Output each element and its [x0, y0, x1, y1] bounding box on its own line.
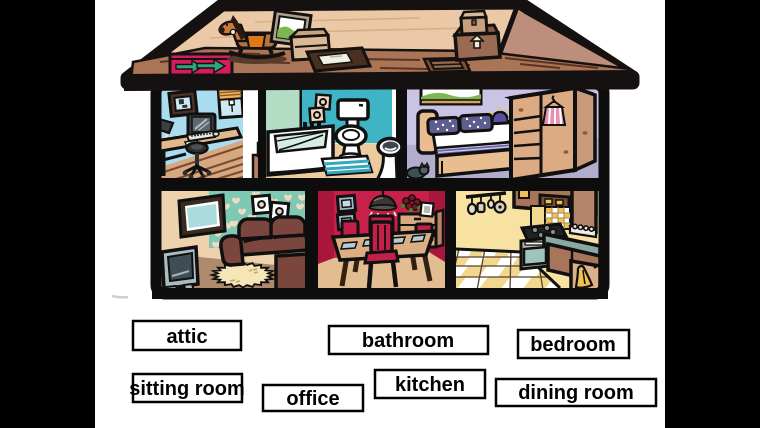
- svg-text:attic: attic: [166, 326, 207, 348]
- svg-text:bathroom: bathroom: [362, 330, 454, 352]
- svg-text:dining room: dining room: [518, 382, 634, 404]
- svg-text:sitting room: sitting room: [129, 378, 245, 400]
- svg-text:kitchen: kitchen: [395, 374, 465, 396]
- svg-text:office: office: [286, 388, 339, 410]
- svg-text:bedroom: bedroom: [530, 334, 616, 356]
